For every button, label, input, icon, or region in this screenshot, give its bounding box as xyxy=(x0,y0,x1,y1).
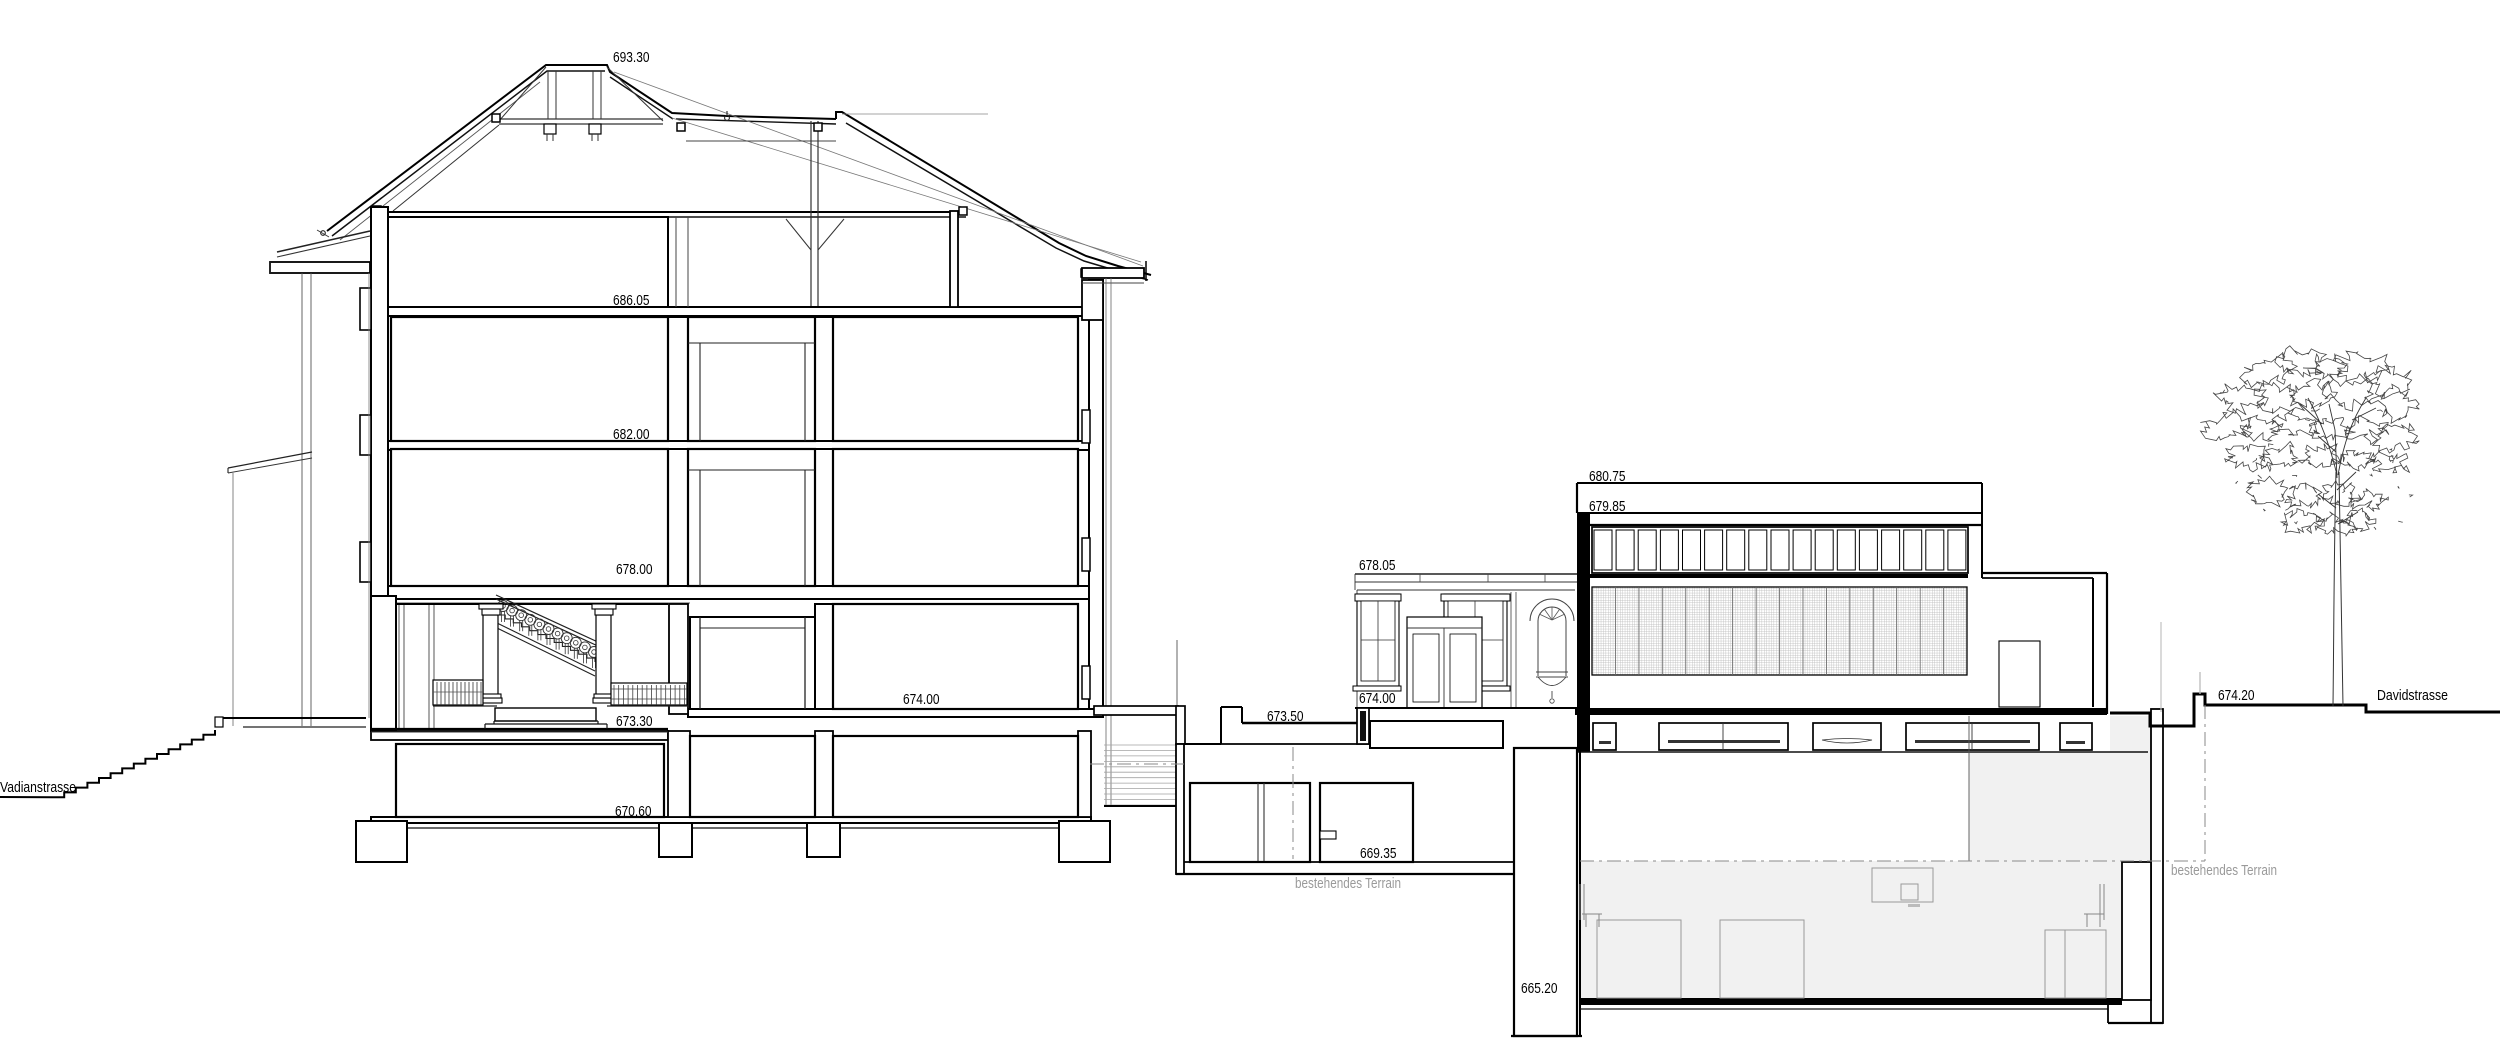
svg-text:674.00: 674.00 xyxy=(903,692,940,708)
svg-text:674.00: 674.00 xyxy=(1359,691,1396,707)
svg-text:678.00: 678.00 xyxy=(616,562,653,578)
svg-text:682.00: 682.00 xyxy=(613,427,650,443)
svg-text:673.50: 673.50 xyxy=(1267,709,1304,725)
svg-text:693.30: 693.30 xyxy=(613,50,650,66)
svg-text:bestehendes Terrain: bestehendes Terrain xyxy=(2171,863,2277,879)
svg-text:bestehendes Terrain: bestehendes Terrain xyxy=(1295,876,1401,892)
svg-text:686.05: 686.05 xyxy=(613,293,650,309)
svg-text:665.20: 665.20 xyxy=(1521,981,1558,997)
svg-text:674.20: 674.20 xyxy=(2218,688,2255,704)
svg-text:Davidstrasse: Davidstrasse xyxy=(2377,688,2448,704)
svg-text:679.85: 679.85 xyxy=(1589,499,1626,515)
svg-text:673.30: 673.30 xyxy=(616,714,653,730)
svg-text:Vadianstrasse: Vadianstrasse xyxy=(0,780,76,796)
svg-text:670.60: 670.60 xyxy=(615,804,652,820)
svg-text:669.35: 669.35 xyxy=(1360,846,1397,862)
svg-text:680.75: 680.75 xyxy=(1589,469,1626,485)
svg-text:678.05: 678.05 xyxy=(1359,558,1396,574)
